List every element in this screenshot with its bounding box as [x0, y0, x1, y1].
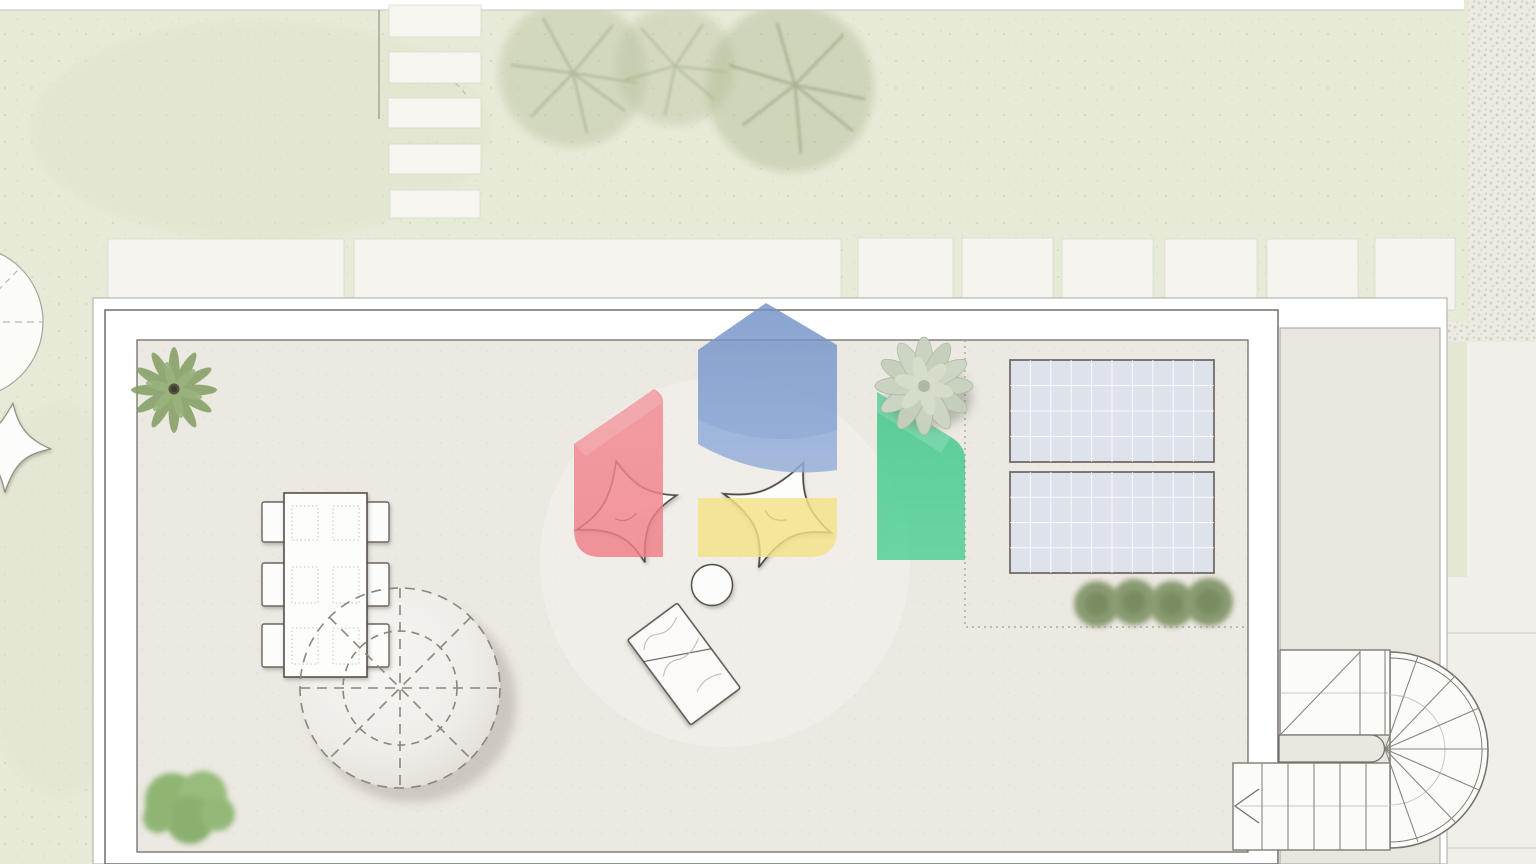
hedge-shrub — [1185, 578, 1233, 626]
stepping-stone — [389, 144, 481, 174]
solar-panel — [1010, 472, 1214, 573]
stepping-stone — [390, 190, 480, 218]
roof-terrace-plan — [0, 0, 1536, 864]
tree-canopy — [706, 4, 874, 172]
top-border-strip — [0, 0, 1464, 10]
stair-center-divider — [1279, 735, 1385, 762]
stepping-stone — [389, 5, 481, 37]
gravel-strip — [1468, 0, 1536, 322]
logo-yellow-shape — [698, 498, 837, 557]
lawn-strip-green — [1448, 342, 1467, 577]
gravel-joint-band — [1447, 322, 1536, 342]
dining-table — [284, 493, 367, 677]
solar-panel — [1010, 360, 1214, 462]
dining-set — [262, 493, 389, 677]
stepping-stone — [388, 98, 481, 128]
floor-plan-canvas — [0, 0, 1536, 864]
stepping-stone — [389, 52, 481, 83]
side-table — [692, 565, 733, 606]
